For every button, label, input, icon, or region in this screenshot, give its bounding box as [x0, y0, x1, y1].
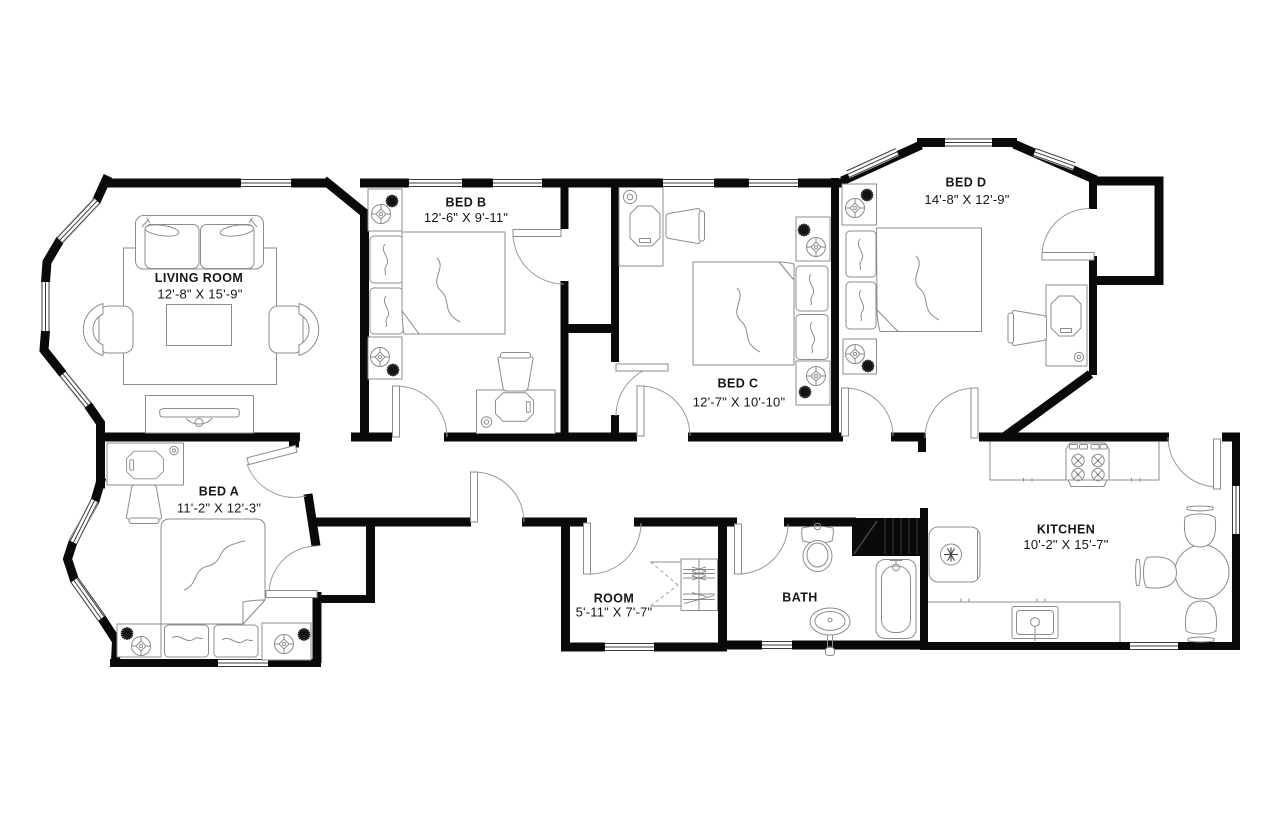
svg-text:12'-8" X 15'-9": 12'-8" X 15'-9"	[157, 287, 242, 302]
svg-text:BED A: BED A	[199, 485, 239, 499]
svg-text:ROOM: ROOM	[594, 592, 635, 606]
svg-text:KITCHEN: KITCHEN	[1037, 523, 1095, 537]
svg-text:BATH: BATH	[782, 591, 817, 605]
svg-text:10'-2" X 15'-7": 10'-2" X 15'-7"	[1023, 537, 1108, 552]
svg-text:11'-2" X 12'-3": 11'-2" X 12'-3"	[177, 501, 261, 516]
svg-text:BED D: BED D	[946, 176, 987, 190]
svg-text:BED C: BED C	[718, 377, 759, 391]
svg-text:5'-11" X 7'-7": 5'-11" X 7'-7"	[576, 605, 653, 620]
svg-text:BED B: BED B	[446, 196, 487, 210]
svg-text:12'-6" X 9'-11": 12'-6" X 9'-11"	[424, 210, 508, 225]
svg-text:12'-7" X 10'-10": 12'-7" X 10'-10"	[693, 395, 786, 410]
svg-text:14'-8" X 12'-9": 14'-8" X 12'-9"	[924, 192, 1009, 207]
svg-text:LIVING ROOM: LIVING ROOM	[155, 271, 243, 285]
